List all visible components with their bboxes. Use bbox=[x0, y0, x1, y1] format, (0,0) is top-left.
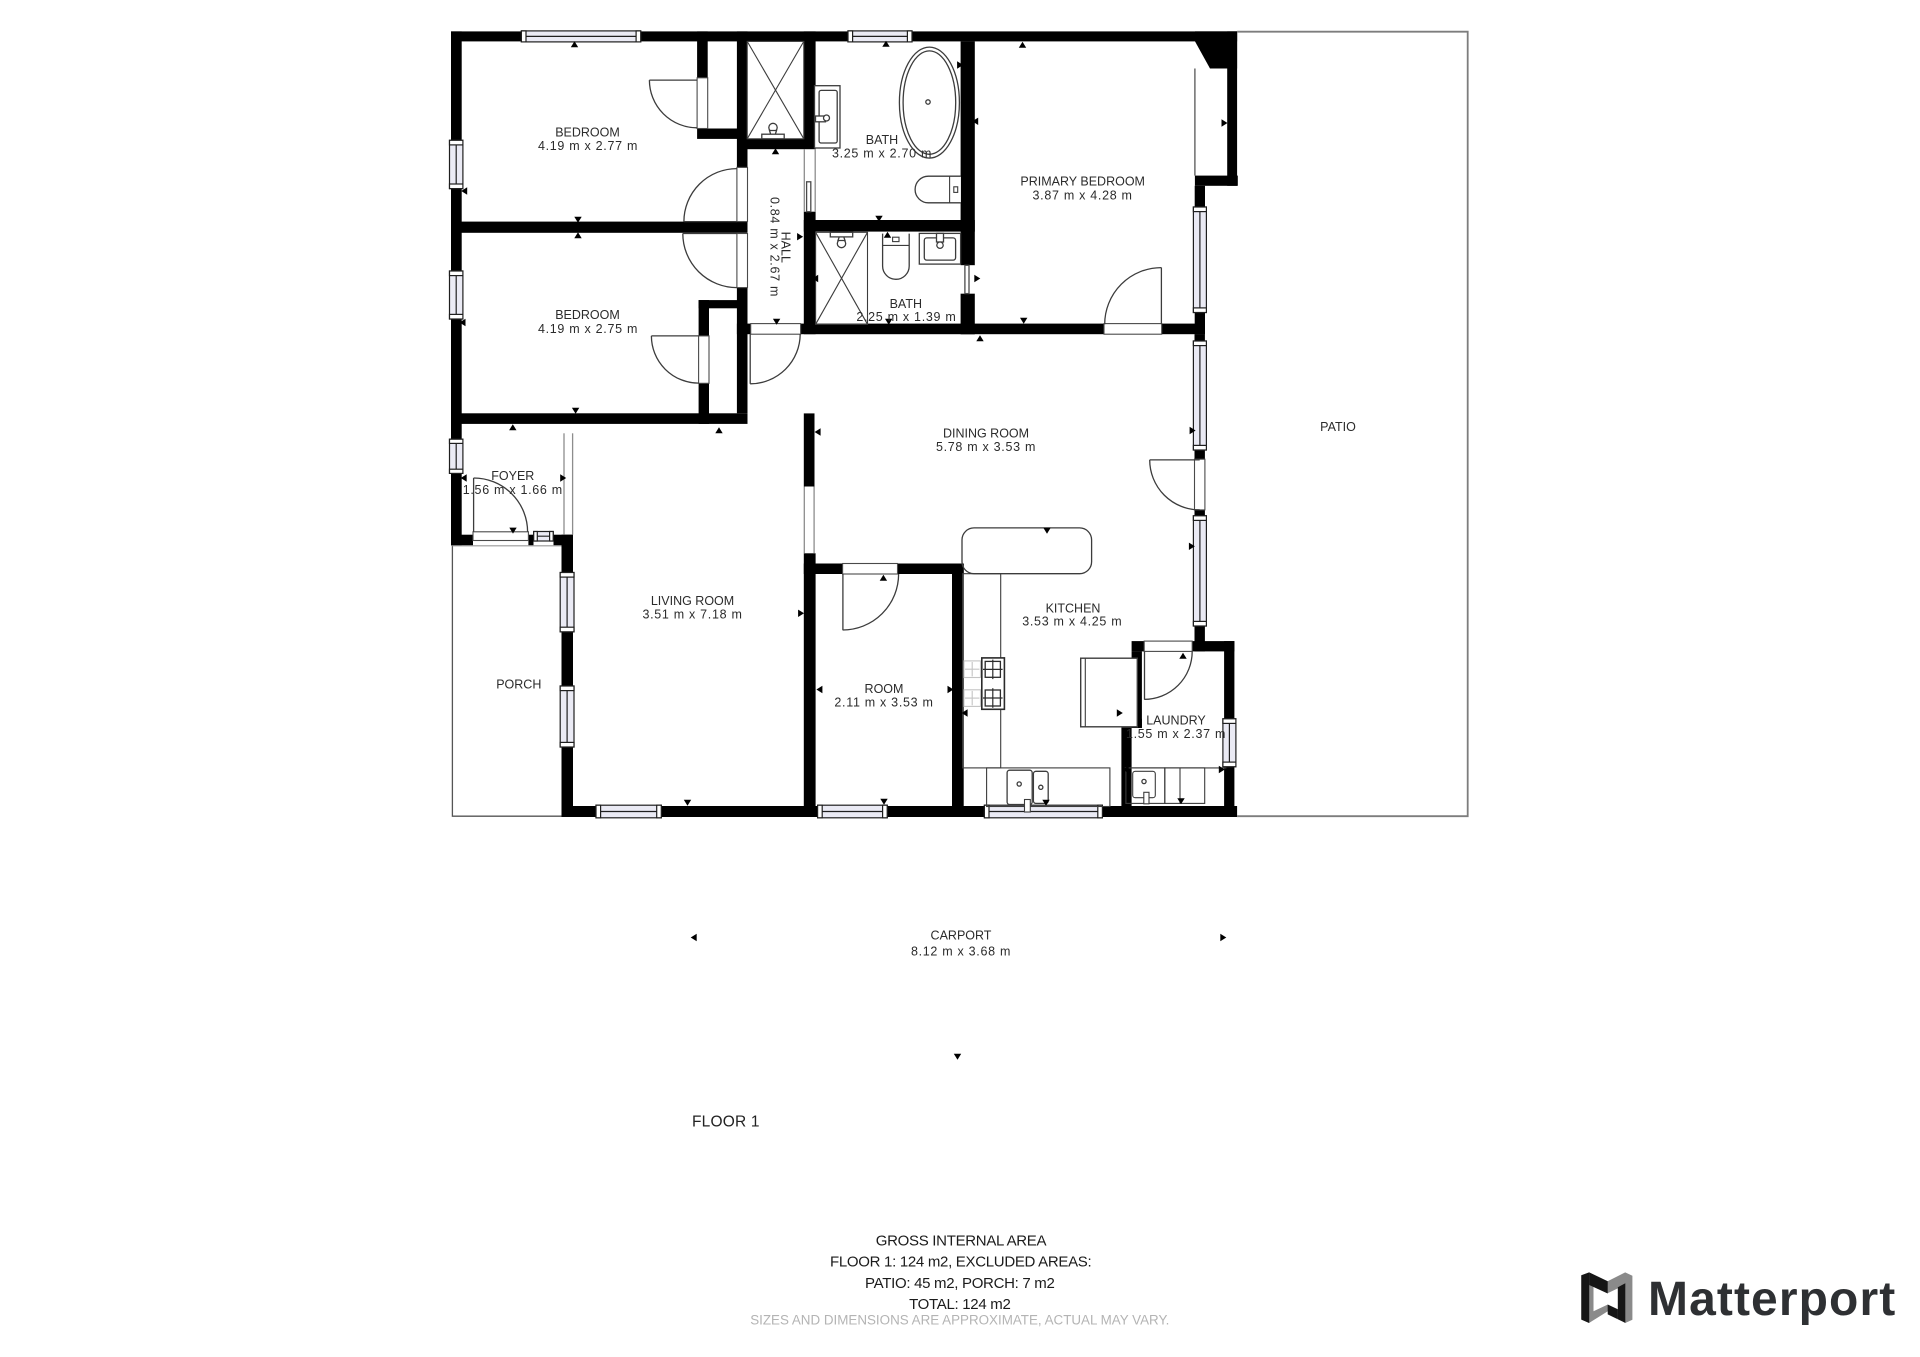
svg-text:LAUNDRY: LAUNDRY bbox=[1146, 713, 1206, 727]
svg-text:CARPORT: CARPORT bbox=[931, 928, 992, 942]
svg-text:GROSS INTERNAL AREA: GROSS INTERNAL AREA bbox=[876, 1233, 1047, 1250]
svg-text:2.11 m x 3.53 m: 2.11 m x 3.53 m bbox=[834, 695, 933, 709]
svg-text:0.84 m x 2.67 m: 0.84 m x 2.67 m bbox=[767, 197, 781, 297]
svg-text:TOTAL: 124 m2: TOTAL: 124 m2 bbox=[909, 1296, 1010, 1313]
svg-text:Matterport: Matterport bbox=[1648, 1273, 1896, 1326]
svg-text:2.25 m x 1.39 m: 2.25 m x 1.39 m bbox=[856, 310, 956, 324]
svg-text:3.53 m x 4.25 m: 3.53 m x 4.25 m bbox=[1022, 614, 1122, 628]
svg-text:8.12 m x 3.68 m: 8.12 m x 3.68 m bbox=[911, 945, 1011, 959]
svg-text:FLOOR 1: FLOOR 1 bbox=[692, 1113, 760, 1130]
svg-text:SIZES AND DIMENSIONS ARE APPRO: SIZES AND DIMENSIONS ARE APPROXIMATE, AC… bbox=[750, 1312, 1169, 1327]
svg-text:1.56 m x 1.66 m: 1.56 m x 1.66 m bbox=[463, 483, 563, 497]
svg-text:FOYER: FOYER bbox=[491, 469, 534, 483]
svg-text:3.87 m x 4.28 m: 3.87 m x 4.28 m bbox=[1033, 188, 1133, 202]
svg-text:PATIO: 45 m2, PORCH: 7 m2: PATIO: 45 m2, PORCH: 7 m2 bbox=[865, 1275, 1055, 1292]
svg-text:BATH: BATH bbox=[890, 297, 922, 311]
svg-text:LIVING ROOM: LIVING ROOM bbox=[651, 594, 734, 608]
svg-text:3.51 m x 7.18 m: 3.51 m x 7.18 m bbox=[642, 607, 742, 621]
svg-text:BEDROOM: BEDROOM bbox=[555, 125, 620, 139]
svg-text:4.19 m x 2.77 m: 4.19 m x 2.77 m bbox=[538, 139, 638, 153]
svg-text:PRIMARY BEDROOM: PRIMARY BEDROOM bbox=[1020, 174, 1145, 188]
svg-text:FLOOR 1: 124 m2, EXCLUDED AREA: FLOOR 1: 124 m2, EXCLUDED AREAS: bbox=[830, 1254, 1091, 1271]
svg-text:PORCH: PORCH bbox=[496, 678, 541, 692]
svg-text:PATIO: PATIO bbox=[1320, 420, 1356, 434]
svg-text:5.78 m x 3.53 m: 5.78 m x 3.53 m bbox=[936, 440, 1036, 454]
svg-text:1.55 m x 2.37 m: 1.55 m x 2.37 m bbox=[1126, 727, 1226, 741]
svg-text:BATH: BATH bbox=[866, 133, 898, 147]
svg-text:BEDROOM: BEDROOM bbox=[555, 308, 620, 322]
svg-text:KITCHEN: KITCHEN bbox=[1046, 601, 1101, 615]
svg-text:4.19 m x 2.75 m: 4.19 m x 2.75 m bbox=[538, 322, 638, 336]
svg-text:ROOM: ROOM bbox=[865, 682, 904, 696]
svg-text:3.25 m x 2.70 m: 3.25 m x 2.70 m bbox=[832, 146, 932, 160]
svg-text:DINING ROOM: DINING ROOM bbox=[943, 426, 1029, 440]
